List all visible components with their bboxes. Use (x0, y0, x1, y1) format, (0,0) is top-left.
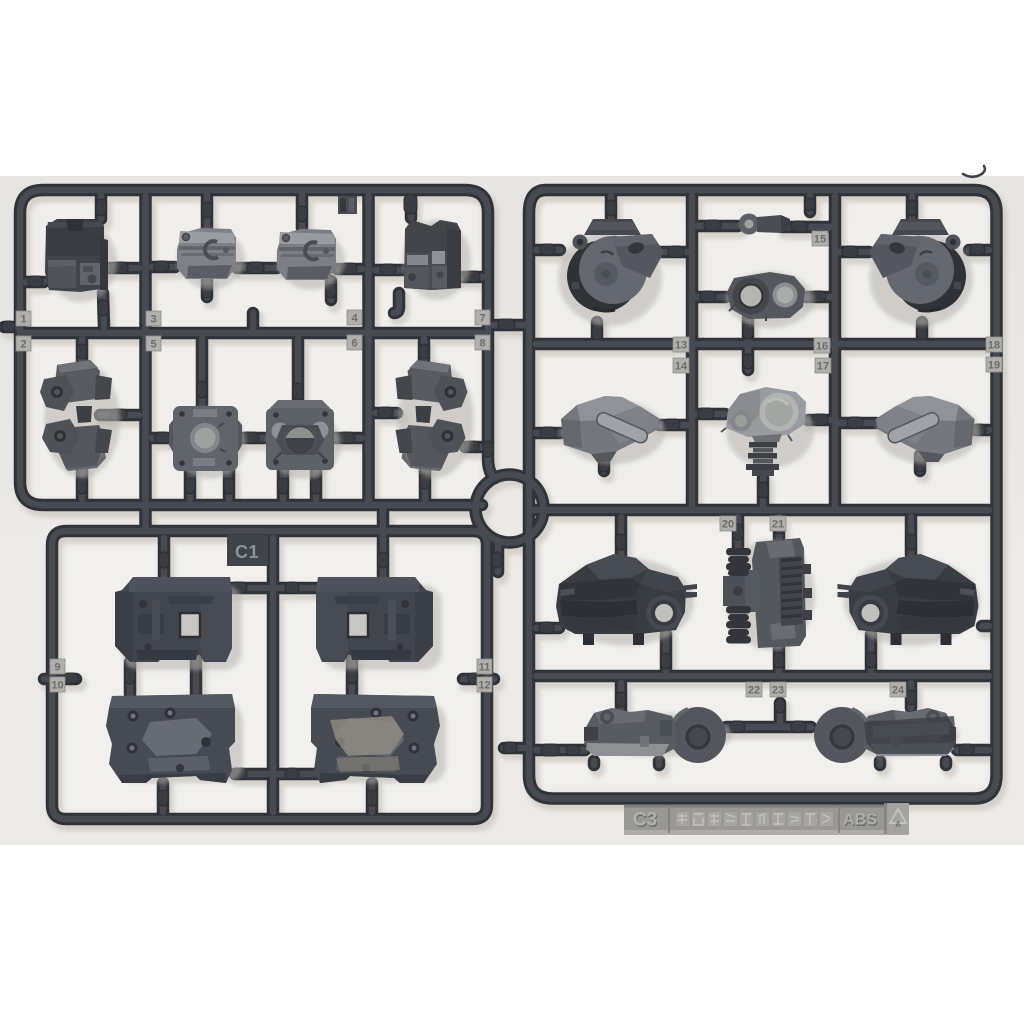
svg-text:21: 21 (772, 519, 784, 531)
svg-text:20: 20 (722, 519, 734, 531)
svg-text:9: 9 (54, 662, 60, 674)
svg-text:15: 15 (814, 234, 826, 246)
svg-text:24: 24 (892, 685, 905, 697)
svg-text:17: 17 (817, 361, 829, 373)
svg-text:16: 16 (816, 341, 828, 353)
svg-text:8: 8 (479, 338, 485, 350)
svg-text:C3: C3 (633, 810, 657, 831)
svg-text:11: 11 (479, 662, 491, 674)
svg-text:5: 5 (150, 339, 156, 351)
svg-text:2: 2 (20, 339, 26, 351)
svg-text:13: 13 (675, 340, 687, 352)
svg-text:7: 7 (479, 313, 485, 325)
svg-text:A: A (895, 820, 901, 829)
svg-text:ABS: ABS (843, 812, 877, 829)
svg-text:3: 3 (150, 314, 156, 326)
svg-text:19: 19 (988, 360, 1000, 372)
svg-text:C1: C1 (235, 542, 259, 562)
svg-text:4: 4 (351, 313, 358, 325)
svg-text:10: 10 (51, 680, 63, 692)
svg-text:14: 14 (675, 361, 688, 373)
svg-text:22: 22 (748, 685, 760, 697)
svg-text:18: 18 (988, 340, 1000, 352)
svg-text:23: 23 (772, 685, 784, 697)
svg-text:1: 1 (20, 314, 26, 326)
svg-text:12: 12 (478, 680, 490, 692)
svg-text:6: 6 (351, 338, 357, 350)
